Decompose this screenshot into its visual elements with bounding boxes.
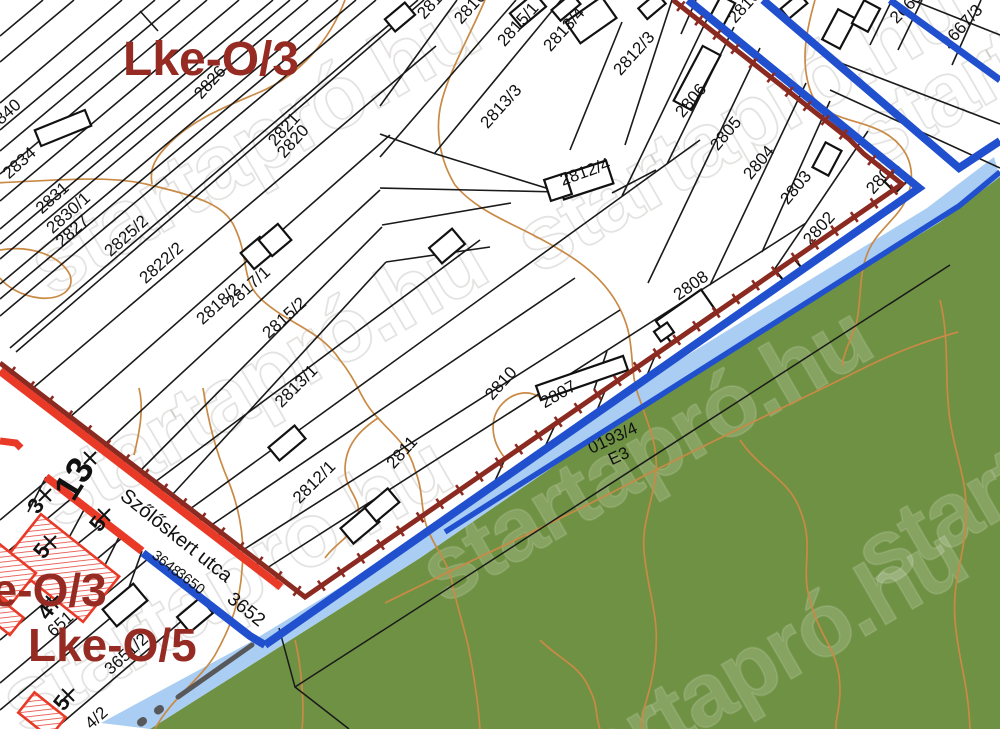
svg-text:Lke-O/3: Lke-O/3 (0, 564, 107, 616)
svg-text:Lke-O/5: Lke-O/5 (28, 619, 197, 671)
svg-text:Lke-O/3: Lke-O/3 (123, 33, 299, 86)
